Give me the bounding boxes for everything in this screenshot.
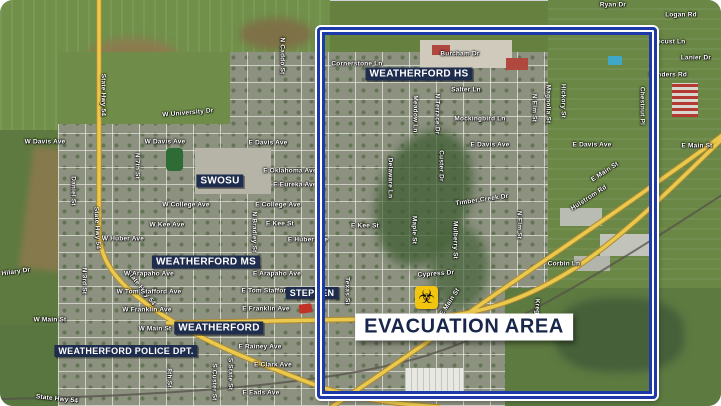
street-label: W Main St	[34, 317, 67, 324]
street-label: N 3rd St	[81, 268, 88, 295]
evacuation-map: State Hwy 54State Hwy 54State Hwy 54Stat…	[0, 0, 721, 406]
street-label: N Bradley St	[251, 211, 258, 252]
street-label: W Main St	[139, 326, 172, 333]
street-label: W Davis Ave	[25, 139, 66, 146]
street-label: E Davis Ave	[249, 140, 288, 147]
street-label: E College Ave	[255, 202, 300, 209]
street-label: E Arapaho Ave	[253, 271, 301, 278]
street-label: E Oklahoma Ave	[263, 168, 317, 175]
street-label: E Clark Ave	[254, 362, 292, 369]
street-label: W Franklin Ave	[122, 307, 171, 314]
incident-site-marker	[298, 303, 312, 314]
street-label: W Tom Stafford Ave	[117, 289, 182, 296]
street-label: Ryan Dr	[600, 2, 626, 9]
poi-label-weatherford-ms: WEATHERFORD MS	[152, 256, 260, 269]
evacuation-area-label: EVACUATION AREA	[355, 314, 573, 341]
biohazard-glyph: ☣	[418, 288, 435, 307]
poi-label-weatherford: WEATHERFORD	[174, 322, 263, 335]
poi-label-weatherford-hs: WEATHERFORD HS	[365, 68, 472, 81]
street-label: W Arapaho Ave	[124, 271, 174, 278]
street-label: E Kee St	[266, 221, 294, 228]
street-label: N Caddo St	[279, 37, 286, 74]
street-label: S State St	[227, 358, 234, 390]
street-label: W Davis Ave	[145, 139, 186, 146]
street-label: E Main St	[681, 143, 712, 150]
street-label: W Huber Ave	[102, 236, 144, 243]
poi-label-swosu: SWOSU	[196, 175, 243, 188]
poi-label-weatherford-police-dpt: WEATHERFORD POLICE DPT.	[54, 345, 197, 357]
street-label: Daniel St	[70, 176, 77, 206]
street-label: Logan Rd	[665, 12, 697, 19]
street-label: 8th St	[166, 368, 173, 387]
street-label: E Eads Ave	[243, 390, 280, 397]
street-label: N 7th St	[134, 153, 141, 179]
street-label: W Kee Ave	[150, 222, 185, 229]
street-label: E Rainey Ave	[238, 344, 281, 351]
evacuation-boundary	[317, 27, 657, 399]
biohazard-icon: ☣	[415, 286, 438, 309]
street-label: State Hwy 54	[100, 74, 107, 117]
street-label: E Eureka Ave	[273, 182, 316, 189]
street-label: W College Ave	[162, 202, 209, 209]
street-label: S Custer St	[211, 363, 218, 400]
street-label: E Franklin Ave	[242, 306, 289, 313]
street-label: Lanier Dr	[681, 55, 711, 62]
street-label: Locust Ln	[653, 39, 686, 46]
